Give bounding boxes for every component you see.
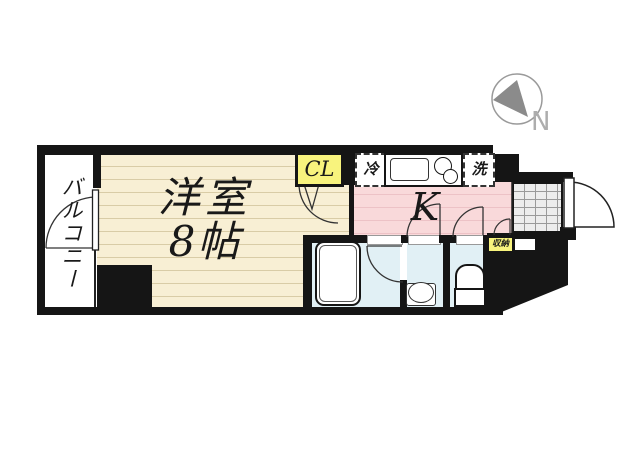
front-door bbox=[564, 178, 614, 228]
toilet-door bbox=[453, 207, 483, 237]
closet-door bbox=[299, 184, 338, 223]
washing-machine-label: 洗 bbox=[471, 162, 486, 178]
storage-door bbox=[494, 219, 510, 235]
closet-label: CL bbox=[304, 158, 334, 180]
bathtub bbox=[315, 241, 361, 306]
toilet-tank bbox=[454, 288, 486, 307]
washing-machine-box: 洗 bbox=[463, 153, 495, 187]
storage-box: 収納 bbox=[489, 238, 512, 251]
main-room-name: 洋室 bbox=[115, 176, 295, 220]
entrance-step bbox=[514, 238, 536, 251]
refrigerator-label: 冷 bbox=[363, 162, 378, 178]
floor-plan: CL 冷 洗 収納 洋室 8帖 バルコニー K N bbox=[0, 0, 640, 455]
storage-label: 収納 bbox=[492, 240, 509, 249]
stove-burner-icon bbox=[443, 169, 458, 184]
kitchen-sink bbox=[390, 158, 429, 181]
refrigerator-box: 冷 bbox=[355, 153, 387, 187]
wash-basin-bowl bbox=[408, 282, 434, 303]
kitchen-label: K bbox=[403, 188, 447, 228]
balcony-label: バルコニー bbox=[52, 160, 82, 306]
bath-door bbox=[367, 246, 403, 282]
closet-box: CL bbox=[295, 152, 344, 187]
front-door-leaf bbox=[564, 178, 574, 228]
plan-drawing-overlay bbox=[0, 0, 640, 455]
main-room-label: 洋室 8帖 bbox=[115, 176, 295, 264]
main-room-size: 8帖 bbox=[115, 220, 295, 264]
compass-north-label: N bbox=[531, 109, 550, 136]
balcony-door-leaf bbox=[93, 190, 99, 250]
